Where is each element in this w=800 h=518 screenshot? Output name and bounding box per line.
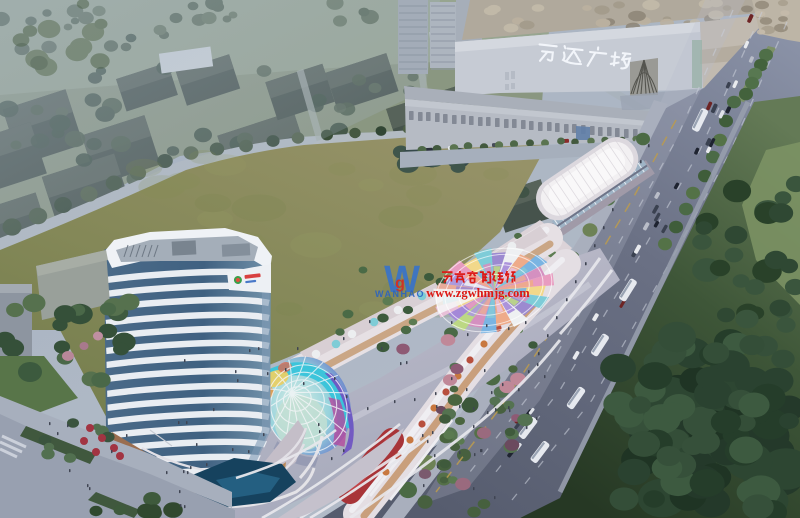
svg-text:WANHAO: WANHAO	[375, 289, 425, 299]
svg-text:www.zgwhmjg.com: www.zgwhmjg.com	[426, 286, 530, 300]
